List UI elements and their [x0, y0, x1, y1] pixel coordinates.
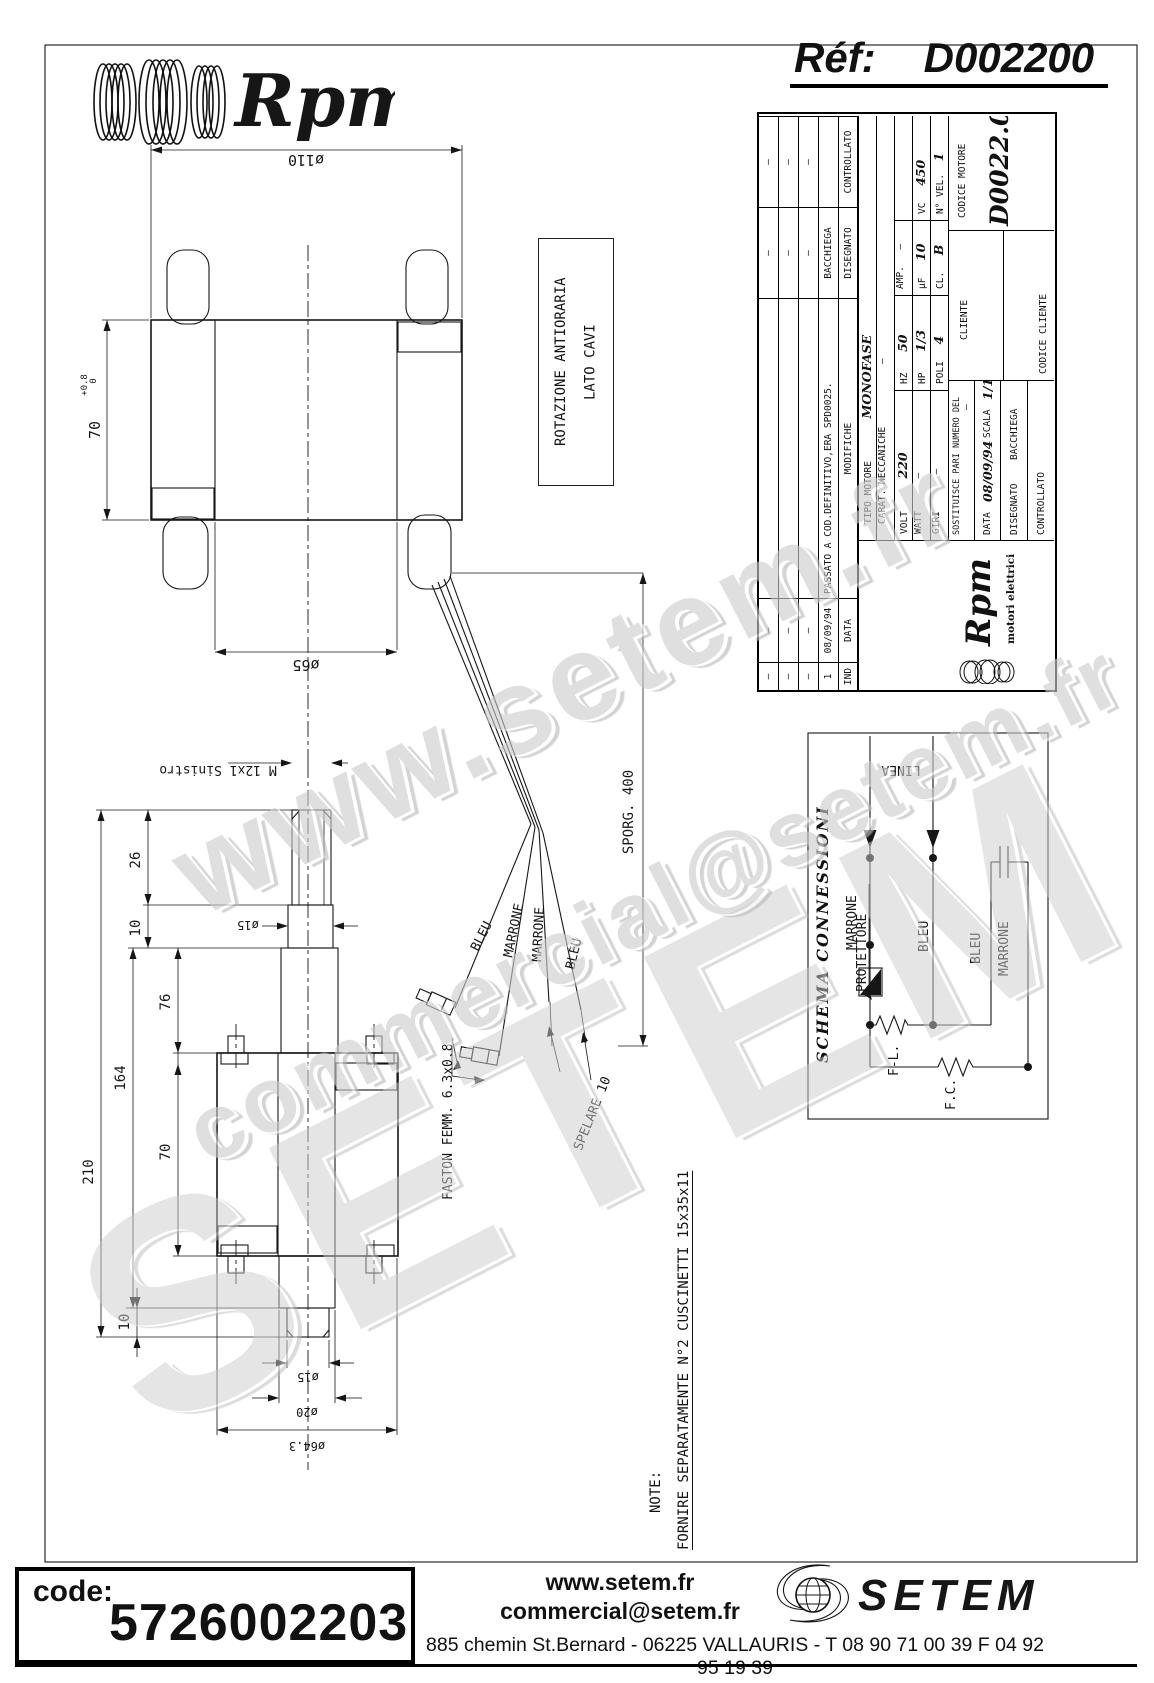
dim-d110-text: ø110 [288, 151, 324, 169]
schema-marrone-aux: MARRONE [997, 921, 1012, 976]
faston-text: FASTON FEMM. 6.3x0.8 [441, 1043, 456, 1200]
faston-connector-2 [459, 1045, 499, 1065]
carat-value: – [877, 358, 888, 364]
title-block: – – – – – – – – – – – – 1 08/09/94 PASSA… [757, 112, 1057, 692]
scala-label: SCALA [982, 409, 993, 438]
hp-value: 1/3 [913, 330, 928, 352]
controllato-label: CONTROLLATO [1036, 472, 1047, 535]
rev-cell: – [779, 598, 799, 662]
cable-bundle: SPORG. 400 BLEU MARRONE MARRONE BLEU [415, 573, 648, 1200]
rev-cell: – [759, 662, 779, 690]
tb-brand-sub: motori elettrici [1005, 554, 1017, 644]
dim-d15-neck-text: ø15 [237, 918, 259, 932]
ref-label: Réf: [794, 34, 876, 81]
giri-label: GIRI [931, 511, 942, 534]
revision-strip: – – – – – – – – – – – – 1 08/09/94 PASSA… [759, 116, 859, 690]
rpm-logo: Rpm [65, 52, 395, 152]
connection-schema: LINEA [808, 733, 1048, 1119]
tb-logo-cell: Rpm motori elettrici [859, 540, 1054, 690]
cl-value: B [931, 245, 946, 256]
code-box: code: 5726002203 [15, 1567, 415, 1664]
note-label: NOTE: [648, 1438, 664, 1513]
hp-cell: HP 1/3 [913, 295, 931, 390]
dim-210-text: 210 [81, 1159, 97, 1184]
rotation-note-line2: LATO CAVI [576, 247, 605, 477]
uf-cell: µF 10 [913, 220, 931, 295]
volt-label: VOLT [899, 511, 910, 534]
code-label: code: [33, 1575, 113, 1609]
rev-header-drawn: DISEGNATO [839, 207, 859, 298]
tipo-motore-label: TIPO MOTORE [863, 461, 874, 524]
dim-sporg-400: SPORG. 400 [618, 573, 648, 1046]
schema-title: SCHEMA CONNESSIONI [813, 748, 832, 1063]
rev-entry-drawn: BACCHIEGA [819, 207, 839, 298]
rev-header-no: IND [839, 662, 859, 690]
dim-10top-text: 10 [128, 920, 144, 937]
data-label: DATA [982, 512, 993, 535]
tipo-motore-row: TIPO MOTORE MONOFASE [859, 116, 877, 540]
rev-cell [779, 298, 799, 598]
rpm-logo-text: Rpm [233, 58, 395, 143]
rev-entry-checked [819, 116, 839, 207]
footer-rule [15, 1664, 1137, 1667]
uf-value: 10 [913, 244, 928, 261]
hp-label: HP [917, 373, 928, 384]
note-text: FORNIRE SEPARATAMENTE N°2 CUSCINETTI 15x… [676, 1072, 692, 1550]
schema-bleu-aux: BLEU [969, 933, 984, 964]
rev-cell: – [799, 598, 819, 662]
rev-header-desc: MODIFICHE [839, 298, 859, 598]
dim-d64-text: ø64.3 [289, 1439, 325, 1453]
rev-cell: – [779, 662, 799, 690]
reference-box: Réf:D002200 [790, 34, 1108, 88]
disegnato-label: DISEGNATO [1009, 484, 1020, 535]
upper-view: ø110 70 +0.8 0 ø65 [80, 145, 462, 762]
spelare-text: SPELARE 10 [571, 1075, 614, 1153]
footer-email[interactable]: commercial@setem.fr [440, 1597, 800, 1626]
amp-value: – [895, 244, 906, 250]
rotation-note-line1: ROTAZIONE ANTIORARIA [547, 247, 576, 477]
codice-motore-label: CODICE MOTORE [957, 144, 968, 218]
dim-70-text: 70 [86, 421, 104, 439]
wire2-label: MARRONE [501, 902, 527, 959]
disegnato-value: BACCHIEGA [1009, 409, 1020, 460]
giri-cell: GIRI – [931, 390, 949, 540]
rotation-note-box: ROTAZIONE ANTIORARIA LATO CAVI [538, 238, 614, 486]
ref-value: D002200 [924, 34, 1094, 81]
footer-address: 885 chemin St.Bernard - 06225 VALLAURIS … [425, 1634, 1045, 1680]
sostituisce-row: SOSTITUISCE PARI NUMERO DEL – [949, 380, 975, 540]
rev-header-date: DATA [839, 598, 859, 662]
poli-cell: POLI 4 [931, 295, 949, 390]
vc-label: VC [917, 203, 928, 214]
watt-value: – [913, 473, 924, 479]
nvel-label: N° VEL. [935, 174, 946, 214]
dim-10bot-text: 10 [117, 1314, 133, 1331]
rev-cell [799, 298, 819, 598]
faston-connector-1 [415, 987, 455, 1015]
codice-cliente-cell: CODICE CLIENTE [1004, 230, 1054, 380]
hz-cell: HZ 50 [895, 295, 913, 390]
bottom-dims: ø15 ø20 ø64.3 [217, 1258, 397, 1453]
carat-label: CARAT. MECCANICHE [877, 427, 888, 524]
volt-value: 220 [895, 452, 910, 478]
dim-26-text: 26 [128, 852, 144, 869]
footer-site[interactable]: www.setem.fr [440, 1568, 800, 1597]
uf-label: µF [917, 278, 928, 289]
rev-header-checked: CONTROLLATO [839, 116, 859, 207]
schema-linea-label: LINEA [881, 762, 920, 777]
sostituisce-label: SOSTITUISCE PARI NUMERO DEL [952, 397, 962, 535]
schema-fc: F.C. [944, 1079, 959, 1110]
poli-value: 4 [931, 336, 946, 345]
rev-cell: – [799, 207, 819, 298]
schema-fl: F-L. [887, 1045, 902, 1076]
dim-70: 70 +0.8 0 [80, 320, 149, 520]
schema-bleu-in: BLEU [917, 921, 932, 952]
nvel-cell: N° VEL. 1 [931, 116, 949, 220]
dim-70b-text: 70 [158, 1144, 174, 1161]
cliente-label: CLIENTE [959, 300, 970, 340]
thread-text: M 12x1 Sinistro [159, 762, 276, 777]
carat-row: CARAT. MECCANICHE – [877, 116, 895, 540]
tipo-motore-value: MONOFASE [859, 335, 874, 418]
amp-label: AMP. [895, 266, 906, 289]
setem-logo: SETEM [770, 1558, 1070, 1634]
hz-label: HZ [899, 373, 910, 384]
rev-cell: – [799, 662, 819, 690]
dim-70-tol-zero: 0 [89, 378, 99, 383]
rev-cell: – [779, 207, 799, 298]
cliente-cell: CLIENTE [949, 230, 1004, 380]
sporg-text: SPORG. 400 [621, 770, 637, 854]
winding-pads [163, 250, 451, 589]
spare-cell [895, 116, 913, 220]
rev-cell: – [759, 207, 779, 298]
dim-164-text: 164 [113, 1065, 129, 1090]
spelare-callout: SPELARE 10 [547, 1026, 614, 1153]
dim-76-text: 76 [158, 994, 174, 1011]
code-value: 5726002203 [109, 1593, 408, 1653]
controllato-row: CONTROLLATO [1028, 380, 1054, 540]
setem-swoosh-icon [777, 1565, 848, 1622]
rev-entry-desc: PASSATO A COD.DEFINITIVO,ERA SPD0025. [819, 298, 839, 598]
rev-cell [759, 298, 779, 598]
data-value: 08/09/94 [980, 441, 995, 502]
schema-protettore: PROTETTORE [855, 914, 870, 992]
dim-d15-neck: ø15 [237, 918, 358, 932]
amp-cell: AMP. – [895, 220, 913, 295]
left-dims: 26 10 76 70 164 [81, 810, 292, 1357]
watt-cell: WATT – [913, 390, 931, 540]
codice-motore-cell: CODICE MOTORE D0022.00 [949, 116, 1054, 230]
dim-70-tol-plus: +0.8 [80, 374, 90, 396]
poli-label: POLI [935, 361, 946, 384]
scala-value: 1/1 [980, 380, 995, 400]
data-scala-row: DATA 08/09/94 SCALA 1/1 [975, 380, 1001, 540]
tb-brand: Rpm [959, 558, 999, 646]
dim-d65-text: ø65 [292, 656, 319, 674]
lower-view: M 12x1 Sinistro ø15 [81, 760, 398, 1471]
giri-value: – [931, 469, 942, 475]
codice-cliente-label: CODICE CLIENTE [1038, 294, 1049, 374]
dim-d15bot-text: ø15 [297, 1370, 319, 1384]
coil-icon [94, 60, 225, 144]
footer-links: www.setem.fr commercial@setem.fr [440, 1568, 800, 1627]
rev-cell: – [799, 116, 819, 207]
wire1-label: BLEU [468, 919, 496, 954]
watt-label: WATT [913, 511, 924, 534]
rev-entry-no: 1 [819, 662, 839, 690]
dim-d110: ø110 [151, 145, 462, 318]
cl-cell: CL. B [931, 220, 949, 295]
cl-label: CL. [935, 272, 946, 289]
vc-cell: VC 450 [913, 116, 931, 220]
rev-cell: – [759, 598, 779, 662]
nvel-value: 1 [931, 153, 946, 162]
volt-cell: VOLT 220 [895, 390, 913, 540]
sostituisce-value: – [961, 404, 972, 410]
wire3-label: MARRONE [530, 907, 548, 963]
rev-entry-date: 08/09/94 [819, 598, 839, 662]
dim-d65: ø65 [215, 522, 397, 674]
dim-thread: M 12x1 Sinistro [159, 760, 348, 778]
rev-cell: – [759, 116, 779, 207]
disegnato-row: DISEGNATO BACCHIEGA [1001, 380, 1028, 540]
vc-value: 450 [913, 160, 928, 186]
drawing-sheet: ø110 70 +0.8 0 ø65 [0, 0, 1154, 1683]
dim-d20-text: ø20 [296, 1405, 318, 1419]
codice-motore-value: D0022.00 [985, 116, 1014, 226]
rev-cell: – [779, 116, 799, 207]
hz-value: 50 [895, 335, 910, 352]
setem-logo-text: SETEM [858, 1571, 1040, 1620]
